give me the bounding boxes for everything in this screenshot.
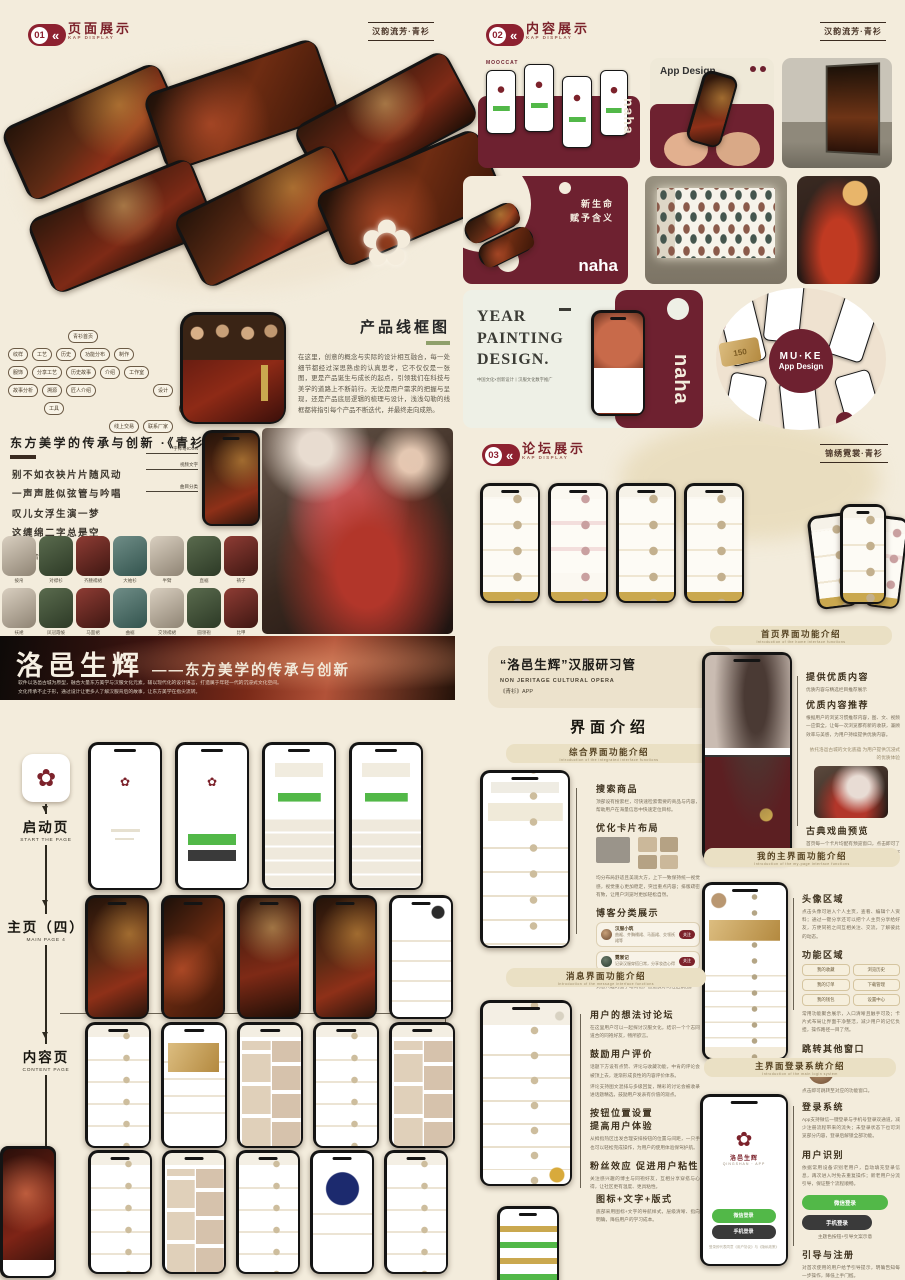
- phone-forum-2: [548, 483, 608, 603]
- annotation-heading: 粉丝效应 促进用户粘性: [590, 1159, 700, 1172]
- phone-detail-4: [310, 1150, 374, 1274]
- clothing-photo: [39, 536, 73, 576]
- phone-detail-2: [162, 1150, 226, 1274]
- annotation-heading: 优化卡片布局: [596, 821, 700, 834]
- wireframe-node: 匠人介绍: [66, 384, 96, 397]
- wireframe-body: 在这里，创意的概念与实际的设计相互融合，每一处细节都经过深思熟虑的认真思考，它不…: [298, 353, 450, 416]
- wireframe-row: 工具图案组合: [8, 402, 209, 415]
- hero-banner: 洛邑生辉 ——东方美学的传承与创新 软件以洛邑古城为原型，融合大量东方美学与汉服…: [0, 636, 455, 700]
- clothing-item: 比甲: [224, 588, 258, 636]
- dash-decor: [559, 308, 571, 311]
- annotation-heading: 按钮位置设置: [590, 1106, 700, 1119]
- research-title: “洛邑生辉”汉服研习管: [500, 654, 722, 673]
- wireframe-node: 服饰: [8, 366, 28, 379]
- banner-subtitle: ——东方美学的传承与创新: [152, 659, 350, 680]
- annotation-body: 点击即可跳转至对应的功能窗口。: [802, 1087, 900, 1095]
- phone-content-1: [85, 1022, 151, 1148]
- circle-decor: [559, 182, 571, 194]
- phone-nav-style: [497, 1206, 559, 1280]
- clothing-item: 对襟衫: [39, 536, 73, 584]
- showcase-card-yearpainting: YEAR PAINTING DESIGN. 中国文化×创新设计丨汉服文化数字推广…: [463, 290, 703, 428]
- muke-center: MU·KE App Design: [769, 329, 833, 393]
- chevrons-icon: «: [506, 449, 511, 462]
- clothing-photo: [150, 588, 184, 628]
- function-chip: 设置中心: [853, 994, 901, 1006]
- annotation-heading: 功能区域: [802, 948, 900, 961]
- comp-annotations: 搜索商品 顶部设有搜索栏，可快速检索需要的商品与内容，帮助用户在海量信息中快速定…: [596, 782, 700, 998]
- wireframe-title: 产品线框图: [298, 316, 450, 337]
- annotation-heading: 跳转其他窗口: [802, 1042, 900, 1055]
- wireframe-node: 溯源: [42, 384, 62, 397]
- flower-decor-icon: ✿: [360, 206, 414, 281]
- phone-launch-1: ✿: [88, 742, 162, 890]
- annotation-heading: 鼓励用户评价: [590, 1047, 700, 1060]
- annotation-body: 关注感兴趣的博主与同袍好友，互相分享穿搭与心得，让社区更有温度、更具粘性。: [590, 1175, 700, 1191]
- section-01-title: 页面展示 KAP DISPLAY: [68, 22, 132, 41]
- wireframe-node: 工艺: [32, 348, 52, 361]
- chevrons-icon: «: [510, 29, 515, 42]
- mini-phone: [524, 64, 554, 132]
- clothing-label: 齐腰襦裙: [76, 578, 110, 584]
- phone-main-1: [85, 895, 149, 1019]
- clothing-item: 半臂: [150, 536, 184, 584]
- interface-intro-title: 界面介绍: [540, 716, 680, 737]
- annotation-heading: 提供优质内容: [806, 670, 900, 683]
- poem-line: 别不如衣袂片片随风动: [12, 466, 122, 485]
- phone-content-5: [389, 1022, 455, 1148]
- poem-line: 一声声胜似弦管与吟唱: [12, 485, 122, 504]
- phone-main-2: [161, 895, 225, 1019]
- annotation-body: 从拇指热区出发合理安排按钮的位置与间距，一只手也可以轻松完成操作，为用户的使用体…: [590, 1135, 700, 1151]
- annotation-line: [797, 676, 798, 826]
- annotation-body: 常用功能聚合展示，入口清晰且触手可及；卡片式布局让界面干净整洁，减少用户的记忆负…: [802, 1010, 900, 1035]
- function-chip: 浏览历史: [853, 964, 901, 976]
- wireframe-node: 历史故事: [66, 366, 96, 379]
- phone-mine: [702, 882, 788, 1060]
- billboard-screen: [826, 62, 880, 155]
- showcase-card-redhanfu: [797, 176, 880, 284]
- banner-title: 洛邑生辉: [16, 644, 144, 683]
- avatar: [601, 929, 612, 940]
- annotation-heading: 优质内容推荐: [806, 698, 900, 711]
- chevrons-icon: «: [52, 29, 57, 42]
- mini-phone: [486, 70, 516, 134]
- annotation-body: App支持微信一键登录与手机号登录双通道，减少注册流程带来的流失；未登录状态下也…: [802, 1116, 900, 1141]
- clothing-photo: [39, 588, 73, 628]
- research-card: “洛邑生辉”汉服研习管 NON JERITAGE CULTURAL OPERA …: [488, 646, 734, 708]
- green-dash: [426, 341, 450, 345]
- login-app-name: 洛邑生辉: [703, 1153, 786, 1162]
- button-caption: 主题色按钮+引导文案示意: [802, 1233, 888, 1241]
- clothing-item: 大袖衫: [113, 536, 147, 584]
- phone-on-tag: [591, 310, 645, 416]
- wireframe-node: 工具: [44, 402, 64, 415]
- annotation-body: 依据常用设备识别老用户，自动填充登录信息，再次进入时免去重复操作；新老用户分流引…: [802, 1164, 900, 1189]
- clothing-item: 圆领袍: [187, 588, 221, 636]
- banner-line: 软件以洛邑古城为原型，融合大量东方美学与汉服文化元素，辅以现代化的设计语言，打造…: [18, 680, 348, 689]
- naha-wordmark: naha: [578, 256, 618, 276]
- wireframe-node: 介绍: [100, 366, 120, 379]
- annotation-line: [576, 788, 577, 934]
- annotation-heading: 古典戏曲预览: [806, 824, 900, 837]
- annotation-body: 对首次使用的用户给予引导提示，明确告知每一步操作，降低上手门槛。: [802, 1264, 900, 1280]
- annotation-body: 均分布局舒适且美观大方，上下一致保持统一视觉感，视觉重心更加稳定，突出重点内容；…: [596, 874, 700, 899]
- callout-label: 曲目分类: [146, 484, 198, 492]
- phone-login: ✿ 洛邑生辉 QINGSHAN · APP 微信登录 手机登录 登录即代表同意《…: [700, 1094, 788, 1266]
- phone-launch-3: [262, 742, 336, 890]
- phone-detail-1: [88, 1150, 152, 1274]
- phone-detail-5: [384, 1150, 448, 1274]
- wechat-login-button-demo: 微信登录: [802, 1195, 888, 1210]
- login-agreement-note: 登录即代表同意《用户协议》与《隐私政策》: [703, 1245, 786, 1250]
- pill-msg-intro: 消息界面功能介绍 Introduction of the message int…: [506, 968, 706, 987]
- clothing-item: 袄裙: [2, 588, 36, 636]
- annotation-body: 优质内容与精选栏目推荐展示: [806, 686, 900, 694]
- clothing-item: 交领襦裙: [150, 588, 184, 636]
- phone-content-3: [237, 1022, 303, 1148]
- year-title: YEAR PAINTING DESIGN.: [477, 306, 564, 371]
- phone-launch-4: [349, 742, 423, 890]
- clothing-item: 直裾: [187, 536, 221, 584]
- clothing-label: 半臂: [150, 578, 184, 584]
- clothing-item: 曲裾: [113, 588, 147, 636]
- clothing-label: 披帛: [2, 578, 36, 584]
- phone-forum-cluster-front: [840, 504, 886, 604]
- flow-stage-launch: 启动页START THE PAGE: [8, 814, 84, 845]
- clothing-item: 披帛: [2, 536, 36, 584]
- opera-preview-photo: [814, 766, 888, 818]
- clothing-grid: 披帛对襟衫齐腰襦裙大袖衫半臂直裾褙子 袄裙凤冠霞帔马面裙曲裾交领襦裙圆领袍比甲: [2, 536, 258, 640]
- annotation-body: 顶部设有搜索栏，可快速检索需要的商品与内容，帮助用户在海量信息中快速定位目标。: [596, 798, 700, 814]
- section-02-subtitle: KAP DISPLAY: [526, 36, 590, 41]
- annotation-body: 评论支持图文混排与多级回复，精彩的讨论会被收录进话题精选，鼓励用户发表有价值的观…: [590, 1083, 700, 1099]
- wireframe-node: 历史: [56, 348, 76, 361]
- clothing-photo: [187, 536, 221, 576]
- clothing-row: 袄裙凤冠霞帔马面裙曲裾交领襦裙圆领袍比甲: [2, 588, 258, 636]
- annotation-body: 话题下方设有点赞、评论与收藏功能，中肯的评论会被顶上去，逐渐形成良性的内容评价体…: [590, 1063, 700, 1079]
- wireframe-node: 纹样: [8, 348, 28, 361]
- phone-content-2: [161, 1022, 227, 1148]
- section-number: 01: [31, 27, 48, 44]
- follow-button: 关注: [679, 957, 695, 966]
- clothing-label: 褙子: [224, 578, 258, 584]
- login-app-sub: QINGSHAN · APP: [703, 1162, 786, 1166]
- clothing-photo: [76, 588, 110, 628]
- clothing-photo: [113, 536, 147, 576]
- wireframe-row: 纹样工艺历史功能分布制作: [8, 348, 173, 361]
- annotation-note: 依托洛邑古城的文化底蕴 为用户提供沉浸式的优质体验: [806, 746, 900, 762]
- phone-login-button-demo: 手机登录: [802, 1215, 872, 1230]
- mini-phone: [721, 371, 768, 430]
- login-annotations: 登录系统 App支持微信一键登录与手机号登录双通道，减少注册流程带来的流失；未登…: [802, 1100, 900, 1280]
- blog-card: 汉服小筑曲裾、齐胸襦裙、马面裙、交领袄裙等 关注: [596, 922, 700, 947]
- pill-login-intro: 主界面登录系统介绍 Introduction of the main login…: [704, 1058, 896, 1077]
- annotation-body: 底部采用图标+文字的导航样式，层级清晰、指向明确，降低用户的学习成本。: [596, 1208, 700, 1224]
- flow-arrow-icon: [42, 900, 48, 909]
- callout-label: 视频文字: [146, 462, 198, 470]
- banner-line: 文化传承不止于形，通过设计让更多人了解汉服背后的故事，让东方美学在指尖流转。: [18, 689, 318, 698]
- gold-card: 150: [718, 337, 762, 368]
- app-logo-flower-icon: ✿: [736, 1127, 753, 1152]
- layout-grid: [638, 837, 678, 869]
- hanfu-model-photo: [262, 428, 453, 634]
- pill-home-intro: 首页界面功能介绍 Introduction of the home interf…: [710, 626, 892, 645]
- phone-forum-4: [684, 483, 744, 603]
- wireframe-node: 故事分析: [8, 384, 38, 397]
- annotation-heading: 引导与注册: [802, 1248, 900, 1261]
- phone-main-3: [237, 895, 301, 1019]
- pill-comp-intro: 综合界面功能介绍 Introduction of the integrated …: [506, 744, 712, 763]
- clothing-label: 对襟衫: [39, 578, 73, 584]
- clothing-photo: [113, 588, 147, 628]
- annotation-line: [580, 1014, 581, 1188]
- phone-main-5: [389, 895, 453, 1019]
- clothing-label: 直裾: [187, 578, 221, 584]
- showcase-card-appdesign: App Design: [650, 58, 774, 168]
- phone-comprehensive: [480, 770, 570, 948]
- phone-message: [480, 1000, 572, 1186]
- clothing-row: 披帛对襟衫齐腰襦裙大袖衫半臂直裾褙子: [2, 536, 258, 584]
- annotation-body: 在这里用户可以一起探讨汉服文化，结识一个个志同道合的同袍好友，畅所欲言。: [590, 1024, 700, 1040]
- clothing-item: 凤冠霞帔: [39, 588, 73, 636]
- function-chip: 下载管理: [853, 979, 901, 991]
- title-dash: [10, 455, 36, 459]
- avatar: [601, 956, 612, 967]
- wireframe-node: 线上交易: [109, 420, 139, 433]
- wireframe-node: 设计: [153, 384, 173, 397]
- mine-function-grid: 我的收藏浏览历史我的订单下载管理我的钱包设置中心: [802, 964, 900, 1006]
- showcase-card-lightbox: [645, 176, 787, 284]
- section-02-tag: 汉韵流芳·青衫: [820, 22, 886, 41]
- follow-button: 关注: [679, 930, 695, 939]
- clothing-label: 大袖衫: [113, 578, 147, 584]
- annotation-body: 点击头像可进入个人主页，查看、编辑个人资料；通过一键分享还可以把个人主页分享给好…: [802, 908, 900, 941]
- home-annotations: 提供优质内容 优质内容与精选栏目推荐展示 优质内容推荐 根据用户的浏览习惯推荐内…: [806, 670, 900, 872]
- annotation-heading: 登录系统: [802, 1100, 900, 1113]
- mini-phone: [827, 290, 882, 364]
- annotation-heading: 博客分类展示: [596, 906, 700, 919]
- function-chip: 我的收藏: [802, 964, 850, 976]
- clothing-photo: [2, 536, 36, 576]
- section-01-subtitle: KAP DISPLAY: [68, 36, 132, 41]
- research-app: 《青衫》APP: [500, 687, 722, 695]
- phone-forum-3: [616, 483, 676, 603]
- app-icon: ✿: [22, 754, 70, 802]
- section-01-tag: 汉韵流芳·青衫: [368, 22, 434, 41]
- phone-login-button: 手机登录: [712, 1225, 776, 1239]
- layout-block: [596, 837, 630, 863]
- section-number: 03: [485, 447, 502, 464]
- phone-mockup-annotated: [202, 430, 260, 526]
- research-en: NON JERITAGE CULTURAL OPERA: [500, 678, 722, 684]
- function-chip: 我的订单: [802, 979, 850, 991]
- phone-forum-1: [480, 483, 540, 603]
- flow-stage-content: 内容页CONTENT PAGE: [8, 1044, 84, 1075]
- wireframe-node: 工作室: [124, 366, 149, 379]
- wireframe-node: 制作: [114, 348, 134, 361]
- dot-decor: [750, 66, 756, 72]
- clothing-photo: [224, 588, 258, 628]
- bottom-annotation: 图标+文字+版式 底部采用图标+文字的导航样式，层级清晰、指向明确，降低用户的学…: [596, 1192, 700, 1231]
- annotation-heading: 搜索商品: [596, 782, 700, 795]
- showcase-card-billboard: [782, 58, 892, 168]
- annotation-heading: 用户的想法讨论坛: [590, 1008, 700, 1021]
- section-number: 02: [489, 27, 506, 44]
- wireframe-text-block: 产品线框图 在这里，创意的概念与实际的设计相互融合，每一处细节都经过深思熟虑的认…: [298, 316, 450, 416]
- function-chip: 我的钱包: [802, 994, 850, 1006]
- naha-wordmark: naha: [621, 98, 637, 135]
- wireframe-node: 功能分布: [80, 348, 110, 361]
- wireframe-node: 青衫首页: [68, 330, 98, 343]
- showcase-card-muke: 150 MU·KE App Design: [710, 288, 905, 430]
- design-poster: 01 « 页面展示 KAP DISPLAY 汉韵流芳·青衫 ✿ 青衫首页 纹样工…: [0, 0, 905, 1280]
- clothing-item: 褙子: [224, 536, 258, 584]
- message-annotations: 用户的想法讨论坛 在这里用户可以一起探讨汉服文化，结识一个个志同道合的同袍好友，…: [590, 1008, 700, 1198]
- annotation-line: [793, 898, 794, 1010]
- annotation-body: 根据用户的浏览习惯推荐内容，图、文、视频一应俱全，让每一次浏览都有新的收获，兼顾…: [806, 714, 900, 739]
- wireframe-row: 线上交易联系厂家: [8, 420, 173, 433]
- poem-line: 叹儿女浮生演一梦: [12, 505, 122, 524]
- phone-home-dark: [702, 652, 792, 862]
- section-03-tag: 锦绣霓裳·青衫: [820, 444, 888, 463]
- showcase-card-phones: MOOCCAT naha: [478, 58, 640, 168]
- phone-launch-2: ✿: [175, 742, 249, 890]
- flow-line: [45, 804, 47, 1148]
- clothing-photo: [150, 536, 184, 576]
- mini-phone: [562, 76, 592, 148]
- showcase-card-newlife: 新生命 赋予含义 naha: [463, 176, 628, 284]
- wireframe-row: 服饰分享工艺历史故事介绍工作室: [8, 366, 173, 379]
- section-01-badge: 01 «: [28, 24, 66, 46]
- flow-arrow-icon: [42, 1032, 48, 1041]
- wechat-login-button: 微信登录: [712, 1209, 776, 1223]
- layout-mockups: [596, 837, 700, 869]
- muke-circle: 150 MU·KE App Design: [716, 288, 886, 430]
- section-03-subtitle: KAP DISPLAY: [522, 456, 586, 461]
- clothing-photo: [224, 536, 258, 576]
- annotation-heading: 用户识别: [802, 1148, 900, 1161]
- annotation-line: [793, 1106, 794, 1246]
- phone-detail-3: [236, 1150, 300, 1274]
- pill-mine-intro: 我的主界面功能介绍 Introduction of the my-page in…: [704, 848, 900, 867]
- section-03-title: 论坛展示 KAP DISPLAY: [522, 442, 586, 461]
- app-logo-flower-icon: ✿: [36, 764, 56, 793]
- naha-wordmark: naha: [669, 354, 692, 405]
- phone-edge-dark: [0, 1146, 56, 1278]
- annotation-heading: 图标+文字+版式: [596, 1192, 700, 1205]
- phone-content-4: [313, 1022, 379, 1148]
- annotation-heading: 提高用户体验: [590, 1119, 700, 1132]
- clothing-item: 齐腰襦裙: [76, 536, 110, 584]
- newlife-text: 新生命 赋予含义: [570, 198, 614, 225]
- brand-label: MOOCCAT: [486, 60, 518, 66]
- wireframe-node: 分享工艺: [32, 366, 62, 379]
- tag-hole: [667, 298, 689, 320]
- clothing-photo: [76, 536, 110, 576]
- annotation-heading: 头像区域: [802, 892, 900, 905]
- clothing-photo: [187, 588, 221, 628]
- clothing-photo: [2, 588, 36, 628]
- phone-callouts: 字体与ICON 视频文字 曲目分类: [146, 446, 198, 500]
- poster-wall: [657, 188, 775, 258]
- wireframe-row: 故事分析溯源匠人介绍设计: [8, 384, 173, 397]
- phone-main-4: [313, 895, 377, 1019]
- poem: 别不如衣袂片片随风动一声声胜似弦管与吟唱叹儿女浮生演一梦这缠绵二字总是空: [12, 466, 122, 544]
- phone-mockup-wireframe: [180, 312, 286, 424]
- wireframe-node: 联系厂家: [143, 420, 173, 433]
- dot-decor: [836, 412, 854, 430]
- section-02-badge: 02 «: [486, 24, 524, 46]
- clothing-item: 马面裙: [76, 588, 110, 636]
- section-02-title: 内容展示 KAP DISPLAY: [526, 22, 590, 41]
- callout-label: 字体与ICON: [146, 446, 198, 454]
- dot-decor: [760, 66, 766, 72]
- year-caption: 中国文化×创新设计丨汉服文化数字推广: [477, 376, 573, 383]
- section-03-badge: 03 «: [482, 444, 520, 466]
- flow-stage-main: 主页（四）MAIN PAGE 4: [0, 914, 92, 945]
